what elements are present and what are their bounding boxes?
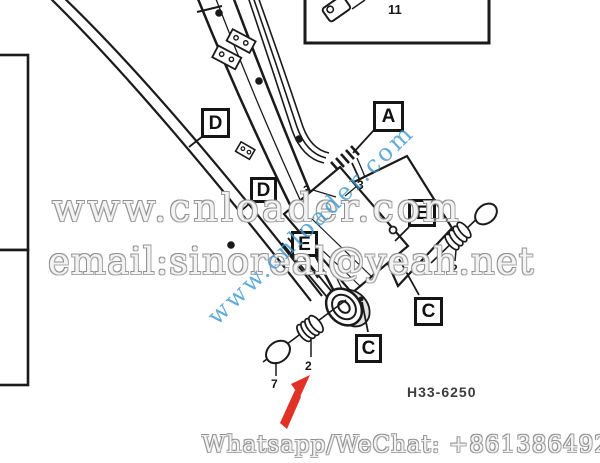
watermark-site: www.cnloader.com [52, 186, 462, 230]
left-frame-boxes [0, 55, 28, 385]
part-number-7: 7 [271, 378, 278, 390]
red-arrow [280, 375, 310, 429]
callout-box-d-upper: D [201, 108, 230, 138]
parts-diagram-page: D D A E E C C 11 3 3 2 2 7 H33-6250 www.… [0, 0, 600, 463]
drawing-number: H33-6250 [407, 384, 477, 400]
hose-clamp-lower [212, 46, 241, 70]
callout-box-c-lower: C [355, 334, 382, 363]
part-number-11: 11 [388, 3, 402, 16]
callout-box-c-upper: C [414, 297, 443, 326]
part-number-2-bottom: 2 [305, 360, 312, 372]
watermark-contact: Whatsapp/WeChat: +8613864928019 [202, 432, 600, 458]
small-clamp [236, 142, 255, 160]
hose-clamp-upper [227, 29, 256, 53]
